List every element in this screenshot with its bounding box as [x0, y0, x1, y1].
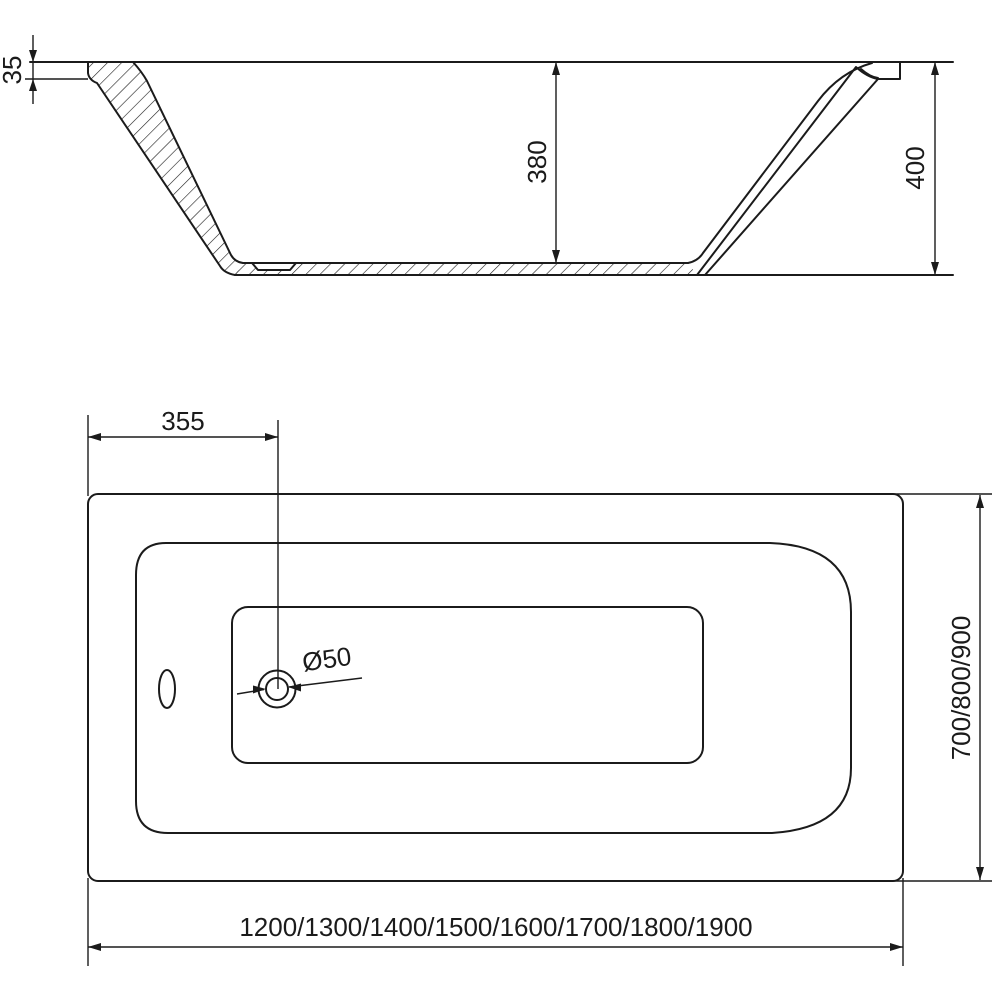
dim-length-arrow-right	[890, 943, 903, 951]
dim-length-label: 1200/1300/1400/1500/1600/1700/1800/1900	[239, 912, 752, 942]
right-wall-back-edge	[705, 79, 878, 275]
technical-drawing-page: 35 380 400	[0, 0, 1000, 1000]
dim-355-arrow-left	[88, 433, 101, 441]
dim-rim-thickness: 35	[0, 35, 88, 104]
right-wall-inner	[688, 63, 872, 263]
dim-400-arrow-bottom	[931, 262, 939, 275]
dim-width-arrow-top	[976, 495, 984, 508]
dim-width-arrow-bottom	[976, 867, 984, 880]
floor-hatch	[235, 263, 697, 275]
plan-view: 355 Ø50 700/800/900	[88, 406, 992, 966]
dim-400-label: 400	[900, 146, 930, 189]
dim-drain-diameter: Ø50	[237, 641, 362, 694]
dim-35-arrow-bottom	[29, 79, 37, 91]
dim-overall-height: 400	[900, 62, 939, 275]
dim-380-arrow-top	[552, 62, 560, 75]
bathtub-dimension-drawing: 35 380 400	[0, 0, 1000, 1000]
left-wall-hatch	[88, 62, 243, 275]
dim-380-label: 380	[522, 140, 552, 183]
dim-380-arrow-bottom	[552, 250, 560, 263]
dim-width-variants: 700/800/900	[893, 494, 992, 881]
overflow-hole	[159, 670, 175, 708]
dim-400-arrow-top	[931, 62, 939, 75]
tub-outer-outline	[88, 494, 903, 881]
right-lip	[878, 62, 900, 79]
drain-inner-circle	[266, 678, 288, 700]
dim-35-arrow-top	[29, 50, 37, 62]
dim-length-variants: 1200/1300/1400/1500/1600/1700/1800/1900	[88, 878, 903, 966]
dim-35-label: 35	[0, 56, 27, 85]
dim-d50-label: Ø50	[300, 641, 353, 678]
dim-width-label: 700/800/900	[946, 616, 976, 761]
dim-length-arrow-left	[88, 943, 101, 951]
dim-inner-depth: 380	[522, 62, 560, 263]
section-view: 35 380 400	[0, 35, 953, 275]
drain-recess	[252, 263, 296, 270]
dim-355-label: 355	[161, 406, 204, 436]
dim-drain-offset: 355	[88, 406, 278, 496]
tub-rim-inner-outline	[136, 543, 851, 833]
dim-355-arrow-right	[265, 433, 278, 441]
right-wall-outer	[697, 67, 878, 275]
